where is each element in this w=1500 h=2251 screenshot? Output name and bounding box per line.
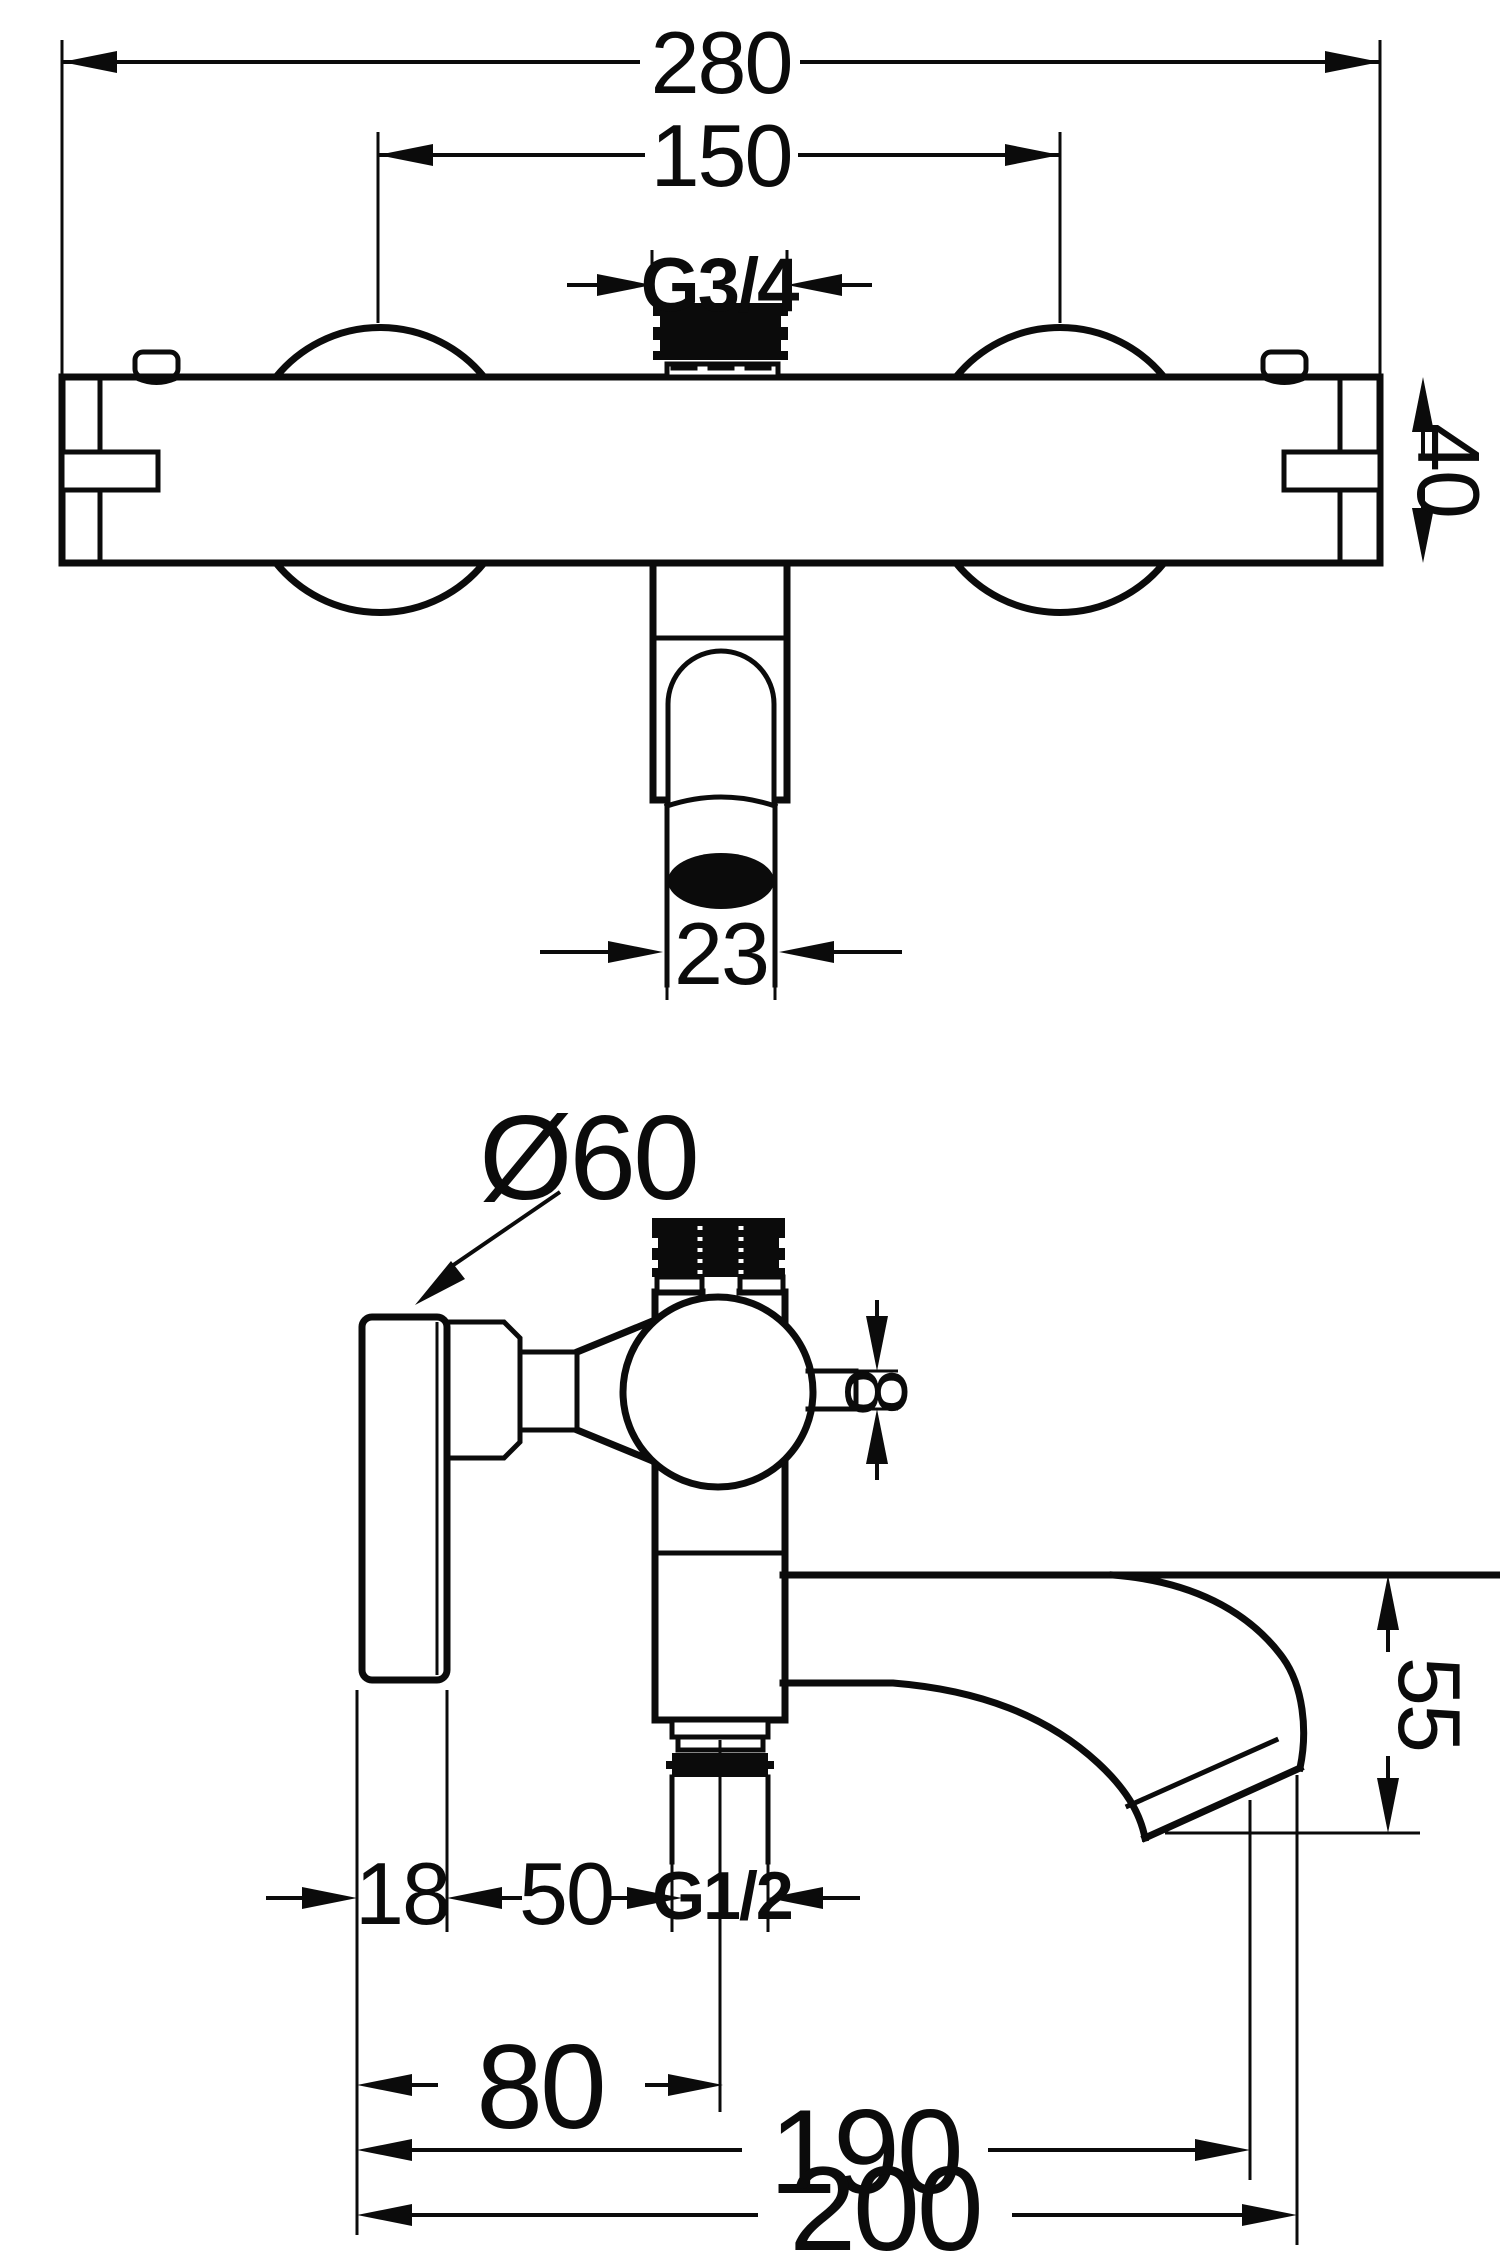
technical-drawing-page: 280 150 G3/4 40 <box>0 0 1500 2251</box>
dim-spout-drop-label: 55 <box>1380 1657 1479 1751</box>
arrowhead <box>357 2139 412 2161</box>
dim-top-thread-label: G3/4 <box>641 243 799 328</box>
thread-connector-g34-side <box>652 1218 785 1277</box>
arrowhead <box>1005 144 1060 166</box>
dim-body-height: 40 <box>1399 377 1498 563</box>
mixer-bar-body <box>62 377 1380 563</box>
arrowhead <box>415 1261 465 1305</box>
mounting-cylinder <box>520 1352 577 1430</box>
dim-spout-tip-label: 200 <box>789 2142 980 2251</box>
dim-wall-to-outlet-label: 80 <box>476 2020 603 2154</box>
control-knob-side <box>623 1297 813 1487</box>
dim-row-wall-to-outlet: 80 <box>357 2020 723 2154</box>
arrowhead <box>1377 1575 1399 1630</box>
arrowhead <box>1195 2139 1250 2161</box>
dim-body-height-label: 40 <box>1399 423 1498 517</box>
arrowhead <box>357 2074 412 2096</box>
arrowhead <box>357 2204 412 2226</box>
lever-indicator-right <box>1284 452 1380 490</box>
arrowhead <box>608 941 663 963</box>
mounting-nut <box>447 1322 520 1458</box>
arrowhead <box>302 1887 357 1909</box>
dim-outlet-diameter: 23 <box>540 904 902 1003</box>
dim-plate-diameter-label: Ø60 <box>479 1091 697 1225</box>
dim-stub-height-label: 8 <box>827 1368 926 1415</box>
arrowhead <box>378 144 433 166</box>
arrowhead <box>866 1316 888 1371</box>
arrowhead <box>62 51 117 73</box>
dim-stub-height: 8 <box>827 1300 926 1480</box>
arrowhead <box>779 941 834 963</box>
faucet-dimension-drawing: 280 150 G3/4 40 <box>0 0 1500 2251</box>
dim-handle-centers-label: 150 <box>651 106 792 205</box>
top-pin-left <box>135 352 178 377</box>
spout-outlet-aerator <box>668 853 774 909</box>
dim-spout-drop: 55 <box>1165 1575 1479 1833</box>
dim-plate-depth-label: 18 <box>355 1844 449 1943</box>
side-view: Ø60 8 55 <box>266 1091 1497 2251</box>
arrowhead <box>447 1887 502 1909</box>
dim-plate-to-thread-label: 50 <box>519 1844 613 1943</box>
dim-top-thread: G3/4 <box>567 243 872 328</box>
arrowhead <box>1242 2204 1297 2226</box>
arrowhead <box>1377 1778 1399 1833</box>
arrowhead <box>1325 51 1380 73</box>
dim-row-spout-tip: 200 <box>357 2142 1297 2251</box>
front-view: 280 150 G3/4 40 <box>62 13 1498 1003</box>
dim-row-plate-thread: 18 50 G1/2 <box>266 1844 860 1943</box>
lever-indicator-left <box>62 452 158 490</box>
arrowhead <box>668 2074 723 2096</box>
wall-plate <box>362 1317 447 1680</box>
arrowhead <box>866 1409 888 1464</box>
dim-outlet-diameter-label: 23 <box>674 904 768 1003</box>
dim-overall-width-label: 280 <box>651 13 792 112</box>
dim-bottom-thread-label: G1/2 <box>652 1858 792 1934</box>
top-pin-right <box>1263 352 1306 377</box>
